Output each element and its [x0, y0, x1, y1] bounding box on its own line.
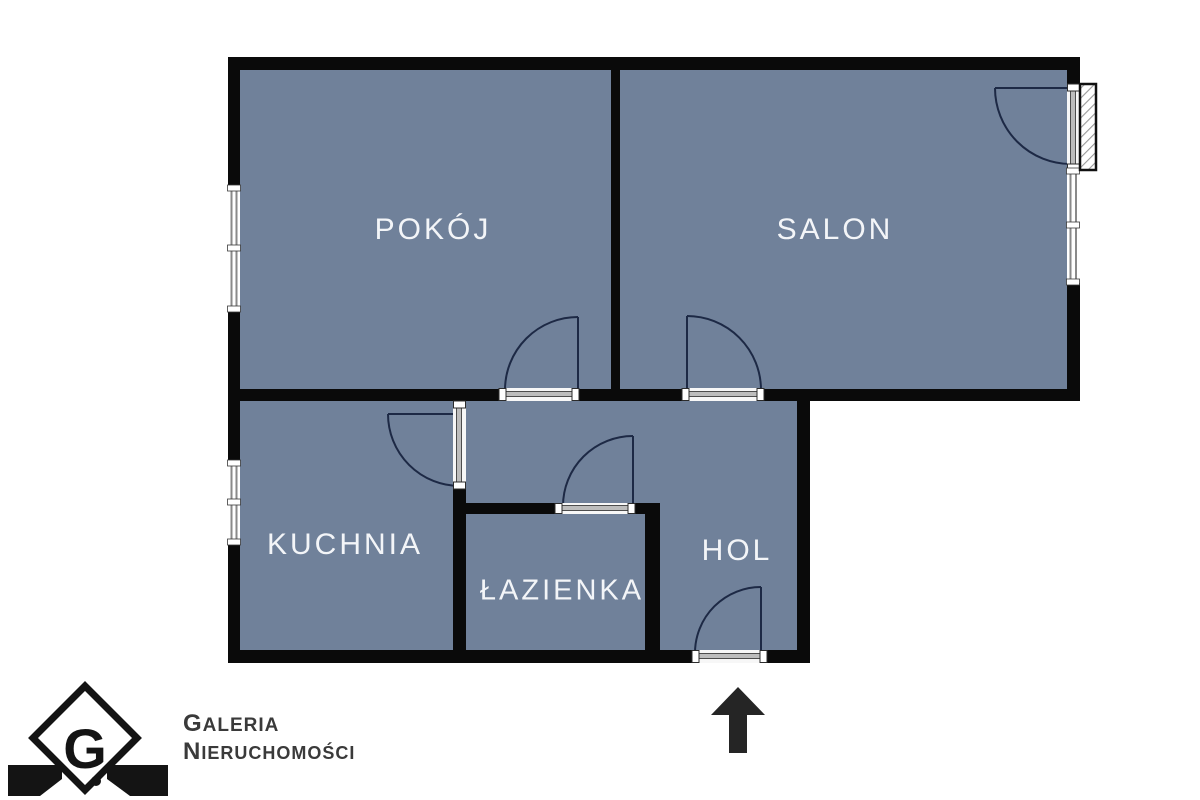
room-label-salon: SALON [777, 213, 894, 247]
floor-plan-drawing: G [0, 0, 1200, 800]
room-label-lazienka: ŁAZIENKA [480, 575, 644, 608]
brand-line-1: GALERIA [183, 711, 355, 739]
brand-logo-icon: G [8, 686, 168, 796]
wall-mid-horizontal [228, 389, 1080, 401]
wall-left [228, 57, 240, 663]
wall-top [228, 57, 1080, 70]
wall-pokoj-salon-divider [611, 70, 620, 389]
wall-lazienka-right [645, 503, 660, 663]
brand-monogram: G [63, 717, 107, 780]
brand-wordmark: GALERIA NIERUCHOMOŚCI [183, 711, 355, 766]
brand-line-2: NIERUCHOMOŚCI [183, 739, 355, 766]
entrance-arrow-icon [711, 687, 765, 753]
room-label-pokoj: POKÓJ [375, 213, 492, 247]
wall-hol-right [797, 389, 810, 663]
floor-plan-page: G POKÓJ SALON KUCHNIA ŁAZIENKA HOL GALER… [0, 0, 1200, 800]
balcony-hatch-block [1080, 84, 1096, 170]
kuchnia-window [228, 460, 241, 545]
room-label-kuchnia: KUCHNIA [267, 528, 423, 562]
pokoj-window [228, 185, 241, 312]
salon-window [1067, 168, 1081, 285]
room-label-hol: HOL [702, 534, 773, 568]
